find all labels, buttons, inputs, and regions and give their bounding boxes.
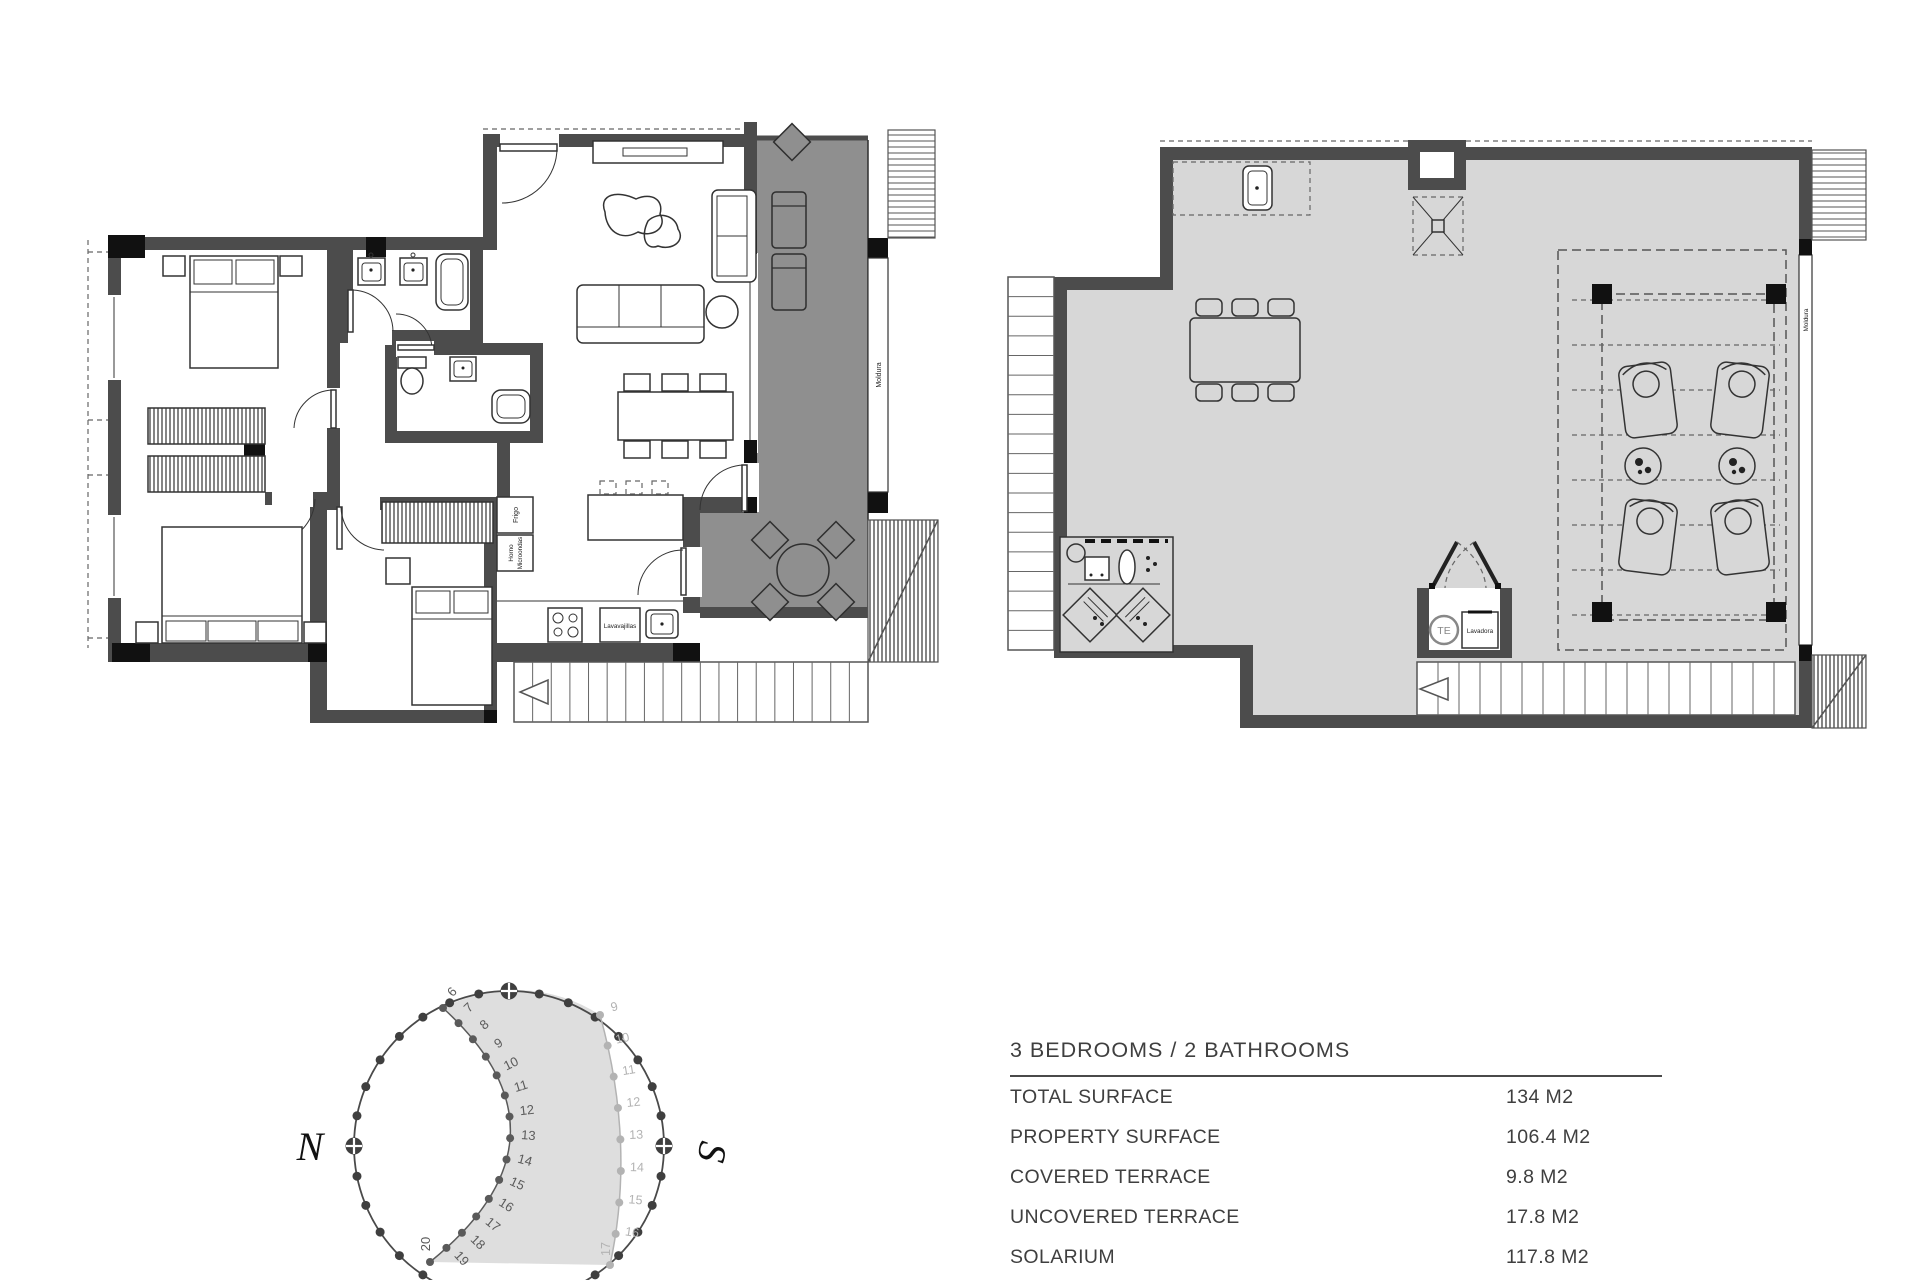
- compass-dot: [591, 1270, 600, 1279]
- compass-dot: [564, 998, 573, 1007]
- compass-dot: [614, 1251, 623, 1260]
- hour-dot: [617, 1167, 625, 1175]
- spec-label: SOLARIUM: [1010, 1246, 1506, 1269]
- compass-dot: [352, 1172, 361, 1181]
- right-floor-plan: TE Lavadora Moldura: [1008, 140, 1866, 728]
- south-label: S: [689, 1138, 737, 1166]
- left-plan-stairs: [514, 662, 868, 722]
- spec-value: 9.8 M2: [1506, 1166, 1568, 1189]
- hour-label: 14: [630, 1160, 644, 1174]
- compass-dot: [657, 1111, 666, 1120]
- bedroom1-furniture: [163, 256, 302, 368]
- compass-dot: [648, 1201, 657, 1210]
- specs-row-property-surface: PROPERTY SURFACE 106.4 M2: [1010, 1117, 1662, 1157]
- hour-dot: [606, 1261, 614, 1269]
- compass-dot: [376, 1228, 385, 1237]
- specs-row-total-surface: TOTAL SURFACE 134 M2: [1010, 1077, 1662, 1117]
- hour-dot: [458, 1229, 466, 1237]
- bathroom1-fixtures: [358, 253, 468, 310]
- solarium-left-stairs: [1008, 277, 1054, 650]
- compass-dot: [352, 1111, 361, 1120]
- compass-dot: [395, 1251, 404, 1260]
- moldura-label-right: Moldura: [1803, 308, 1810, 331]
- hour-label: 13: [521, 1127, 537, 1143]
- compass-dot: [418, 1270, 427, 1279]
- specs-table: 3 BEDROOMS / 2 BATHROOMS TOTAL SURFACE 1…: [1010, 1038, 1662, 1277]
- compass-dot: [633, 1055, 642, 1064]
- te-label: TE: [1437, 625, 1450, 637]
- hour-dot: [485, 1195, 493, 1203]
- spec-label: TOTAL SURFACE: [1010, 1086, 1506, 1109]
- solarium-dining-set: [1190, 299, 1300, 401]
- north-label: N: [296, 1124, 326, 1169]
- spec-value: 17.8 M2: [1506, 1206, 1579, 1229]
- hour-label: 12: [626, 1095, 641, 1110]
- moldura-label-left: Moldura: [876, 362, 883, 387]
- hour-label: 11: [621, 1062, 636, 1078]
- spec-value: 117.8 M2: [1506, 1246, 1589, 1269]
- property-dashed-lines: [88, 240, 108, 648]
- spec-value: 134 M2: [1506, 1086, 1573, 1109]
- spec-label: PROPERTY SURFACE: [1010, 1126, 1506, 1149]
- living-dining-furniture: [577, 141, 756, 458]
- left-floor-plan: Frigo Horno Microondas Lavavajillas: [88, 122, 938, 723]
- bathroom2-fixtures: [398, 357, 530, 423]
- hour-dot: [493, 1071, 501, 1079]
- kitchen: Frigo Horno Microondas Lavavajillas: [497, 481, 683, 642]
- hour-dot: [506, 1113, 514, 1121]
- hour-label: 20: [418, 1237, 433, 1251]
- compass-dot: [535, 989, 544, 998]
- spec-value: 106.4 M2: [1506, 1126, 1591, 1149]
- hour-dot: [610, 1073, 618, 1081]
- hour-label: 13: [629, 1127, 644, 1142]
- compass-dot: [445, 998, 454, 1007]
- specs-row-solarium: SOLARIUM 117.8 M2: [1010, 1237, 1662, 1277]
- hour-dot: [501, 1091, 509, 1099]
- specs-title: 3 BEDROOMS / 2 BATHROOMS: [1010, 1038, 1662, 1075]
- compass-dot: [361, 1082, 370, 1091]
- terrace-railing: Moldura: [868, 258, 888, 492]
- hour-dot: [495, 1176, 503, 1184]
- compass-dot: [657, 1172, 666, 1181]
- bedroom3-furniture: [386, 558, 492, 705]
- hour-dot: [604, 1042, 612, 1050]
- horno-label: Horno: [508, 544, 515, 562]
- hour-dot: [472, 1212, 480, 1220]
- hour-dot: [469, 1035, 477, 1043]
- lavavajillas-label: Lavavajillas: [604, 623, 637, 630]
- hour-label: 16: [624, 1224, 640, 1240]
- compass-dot: [395, 1032, 404, 1041]
- hour-label: 6: [444, 984, 460, 999]
- hour-dot: [615, 1199, 623, 1207]
- compass-dot: [474, 989, 483, 998]
- hour-dot: [616, 1135, 624, 1143]
- microondas-label: Microondas: [517, 537, 524, 570]
- hour-dot: [482, 1053, 490, 1061]
- hour-dot: [596, 1011, 604, 1019]
- hour-label: 10: [614, 1030, 631, 1047]
- solarium-bottom-stairs: [1417, 662, 1795, 715]
- sun-path-diagram: 6789101112131415161718192091011121314151…: [296, 983, 737, 1280]
- bbq-corner: [1060, 537, 1173, 652]
- hour-dot: [612, 1230, 620, 1238]
- hour-dot: [442, 1244, 450, 1252]
- compass-dot: [376, 1055, 385, 1064]
- hour-dot: [426, 1258, 434, 1266]
- compass-dot: [418, 1013, 427, 1022]
- floorplan-page: Frigo Horno Microondas Lavavajillas: [0, 0, 1920, 1280]
- hour-dot: [455, 1019, 463, 1027]
- hour-dot: [439, 1004, 447, 1012]
- chimney: [1408, 140, 1466, 190]
- hour-dot: [503, 1156, 511, 1164]
- spec-label: UNCOVERED TERRACE: [1010, 1206, 1506, 1229]
- bedroom2-furniture: [136, 527, 326, 643]
- hour-dot: [614, 1104, 622, 1112]
- compass-dot: [648, 1082, 657, 1091]
- compass-dot: [361, 1201, 370, 1210]
- hour-label: 17: [599, 1242, 613, 1256]
- specs-row-covered-terrace: COVERED TERRACE 9.8 M2: [1010, 1157, 1662, 1197]
- hour-label: 9: [609, 999, 619, 1014]
- frigo-label: Frigo: [513, 507, 520, 523]
- hour-label: 12: [519, 1102, 535, 1119]
- hour-label: 15: [628, 1192, 643, 1207]
- lavadora-label: Lavadora: [1467, 628, 1494, 635]
- hour-dot: [506, 1134, 514, 1142]
- spec-label: COVERED TERRACE: [1010, 1166, 1506, 1189]
- specs-row-uncovered-terrace: UNCOVERED TERRACE 17.8 M2: [1010, 1197, 1662, 1237]
